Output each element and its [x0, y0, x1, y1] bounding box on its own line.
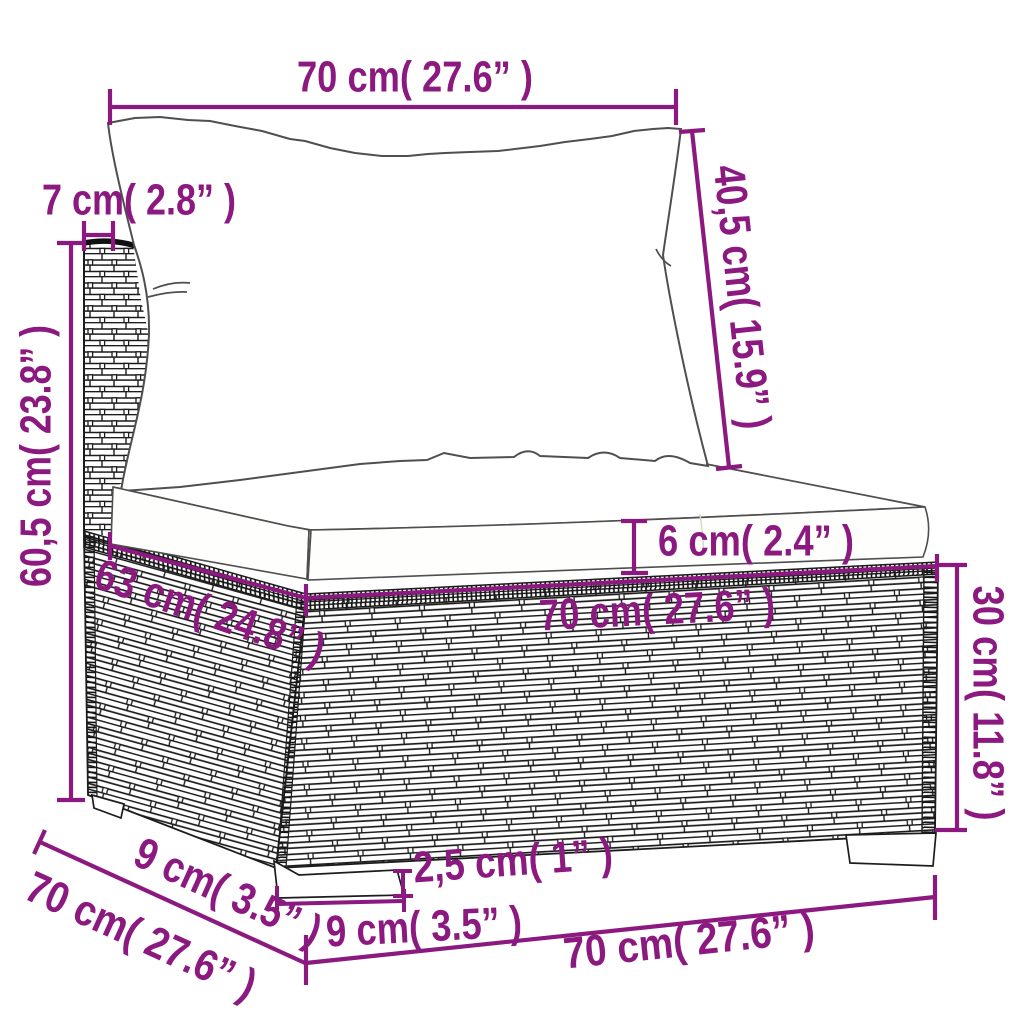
svg-text:30 cm( 11.8” ): 30 cm( 11.8” ) — [964, 586, 1013, 821]
svg-text:70 cm( 27.6” ): 70 cm( 27.6” ) — [297, 53, 533, 102]
svg-text:9 cm( 3.5” ): 9 cm( 3.5” ) — [325, 897, 523, 956]
svg-text:60,5 cm( 23.8” ): 60,5 cm( 23.8” ) — [12, 325, 61, 587]
svg-text:6 cm( 2.4” ): 6 cm( 2.4” ) — [658, 517, 854, 566]
svg-text:7 cm( 2.8” ): 7 cm( 2.8” ) — [42, 176, 236, 225]
